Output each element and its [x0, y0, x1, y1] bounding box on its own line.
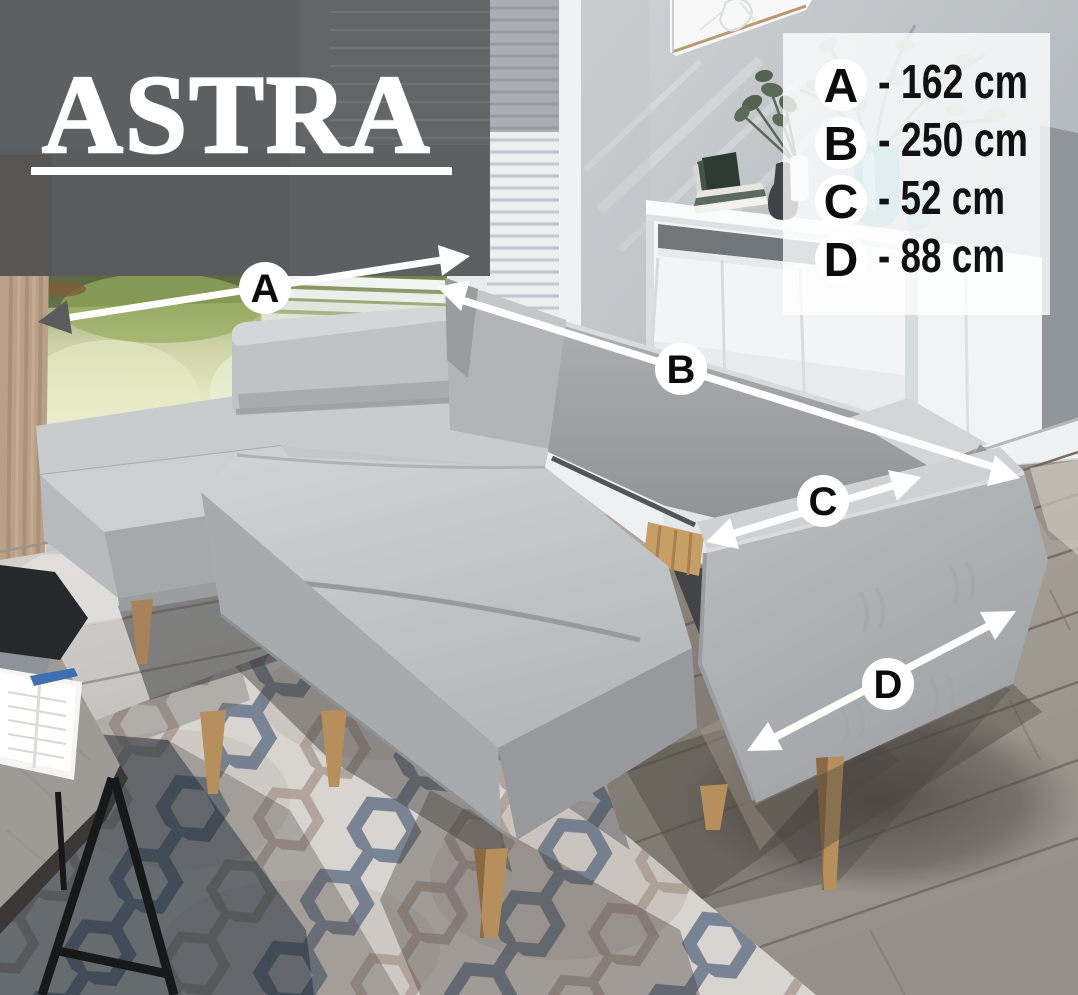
svg-text:D: D [874, 663, 903, 707]
svg-text:- 250 cm: - 250 cm [878, 114, 1028, 167]
svg-text:- 162 cm: - 162 cm [878, 56, 1028, 109]
svg-text:- 52 cm: - 52 cm [878, 172, 1005, 225]
svg-text:C: C [824, 176, 859, 229]
svg-text:A: A [824, 60, 859, 113]
svg-text:- 88 cm: - 88 cm [878, 230, 1005, 283]
svg-text:C: C [809, 480, 838, 524]
svg-text:B: B [824, 118, 859, 171]
svg-text:ASTRA: ASTRA [42, 53, 432, 177]
svg-text:B: B [667, 348, 696, 392]
svg-text:D: D [824, 234, 859, 287]
svg-text:A: A [251, 267, 280, 311]
